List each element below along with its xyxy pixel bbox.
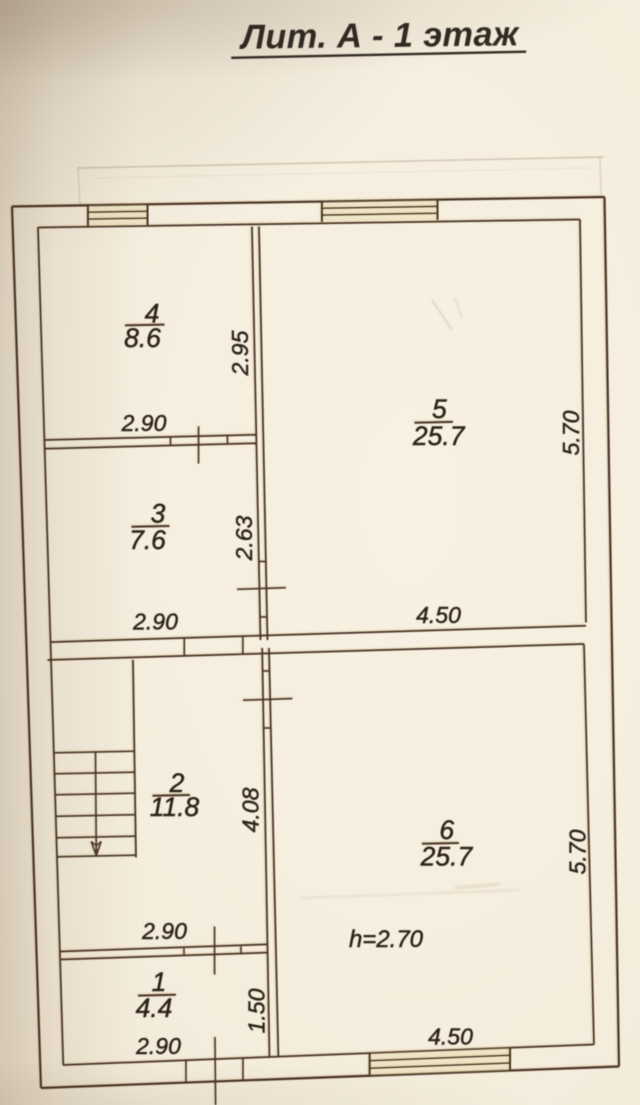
svg-text:5.70: 5.70 xyxy=(558,410,584,455)
svg-text:2.90: 2.90 xyxy=(132,609,178,635)
svg-text:2.90: 2.90 xyxy=(141,918,187,944)
svg-text:1.50: 1.50 xyxy=(244,988,270,1033)
svg-text:7.6: 7.6 xyxy=(129,525,166,555)
svg-text:4.50: 4.50 xyxy=(428,1024,473,1050)
svg-text:2.63: 2.63 xyxy=(231,515,257,561)
svg-text:2.95: 2.95 xyxy=(227,330,253,376)
svg-text:4.50: 4.50 xyxy=(416,602,461,628)
svg-text:Лит. А - 1 этаж: Лит. А - 1 этаж xyxy=(238,15,520,56)
svg-text:6: 6 xyxy=(439,815,454,845)
svg-text:8.6: 8.6 xyxy=(124,323,161,353)
svg-text:2.90: 2.90 xyxy=(135,1033,181,1059)
svg-text:4.4: 4.4 xyxy=(136,993,173,1023)
svg-text:11.8: 11.8 xyxy=(150,792,200,822)
svg-text:25.7: 25.7 xyxy=(412,421,466,451)
svg-text:2.90: 2.90 xyxy=(121,410,167,436)
svg-text:5.70: 5.70 xyxy=(565,829,591,874)
svg-text:5: 5 xyxy=(432,394,447,424)
svg-text:h=2.70: h=2.70 xyxy=(349,926,424,953)
svg-text:4.08: 4.08 xyxy=(238,787,264,832)
svg-text:3: 3 xyxy=(151,499,166,529)
svg-text:25.7: 25.7 xyxy=(420,842,474,872)
